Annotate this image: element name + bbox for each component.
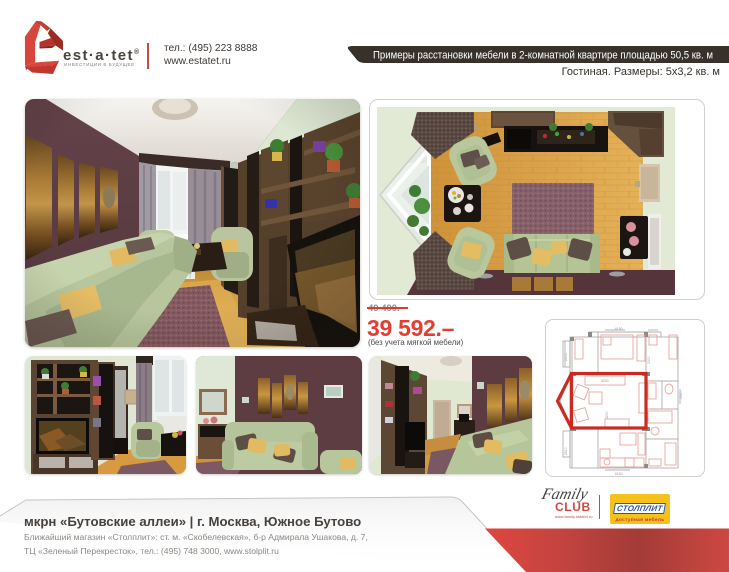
svg-text:6150: 6150 (615, 472, 623, 476)
svg-text:2215: 2215 (564, 353, 568, 361)
svg-text:6150: 6150 (615, 327, 623, 331)
svg-text:5000: 5000 (601, 379, 609, 383)
svg-text:3200: 3200 (605, 411, 609, 419)
svg-text:Примеры расстановки мебели в 2: Примеры расстановки мебели в 2-комнатной… (373, 50, 713, 62)
svg-text:2300: 2300 (647, 356, 651, 364)
svg-text:1300: 1300 (679, 391, 683, 399)
svg-text:2610: 2610 (564, 447, 568, 455)
